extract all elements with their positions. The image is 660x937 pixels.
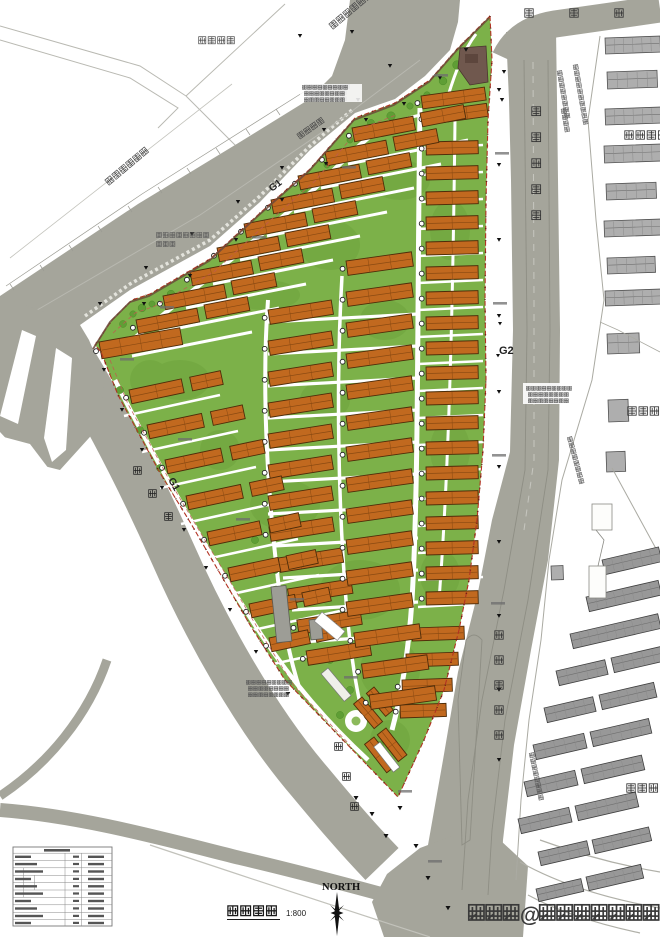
- svg-text:G2: G2: [499, 345, 514, 357]
- svg-text:1:800: 1:800: [286, 909, 307, 918]
- svg-text:@: @: [520, 904, 540, 927]
- svg-text:NORTH: NORTH: [322, 882, 360, 893]
